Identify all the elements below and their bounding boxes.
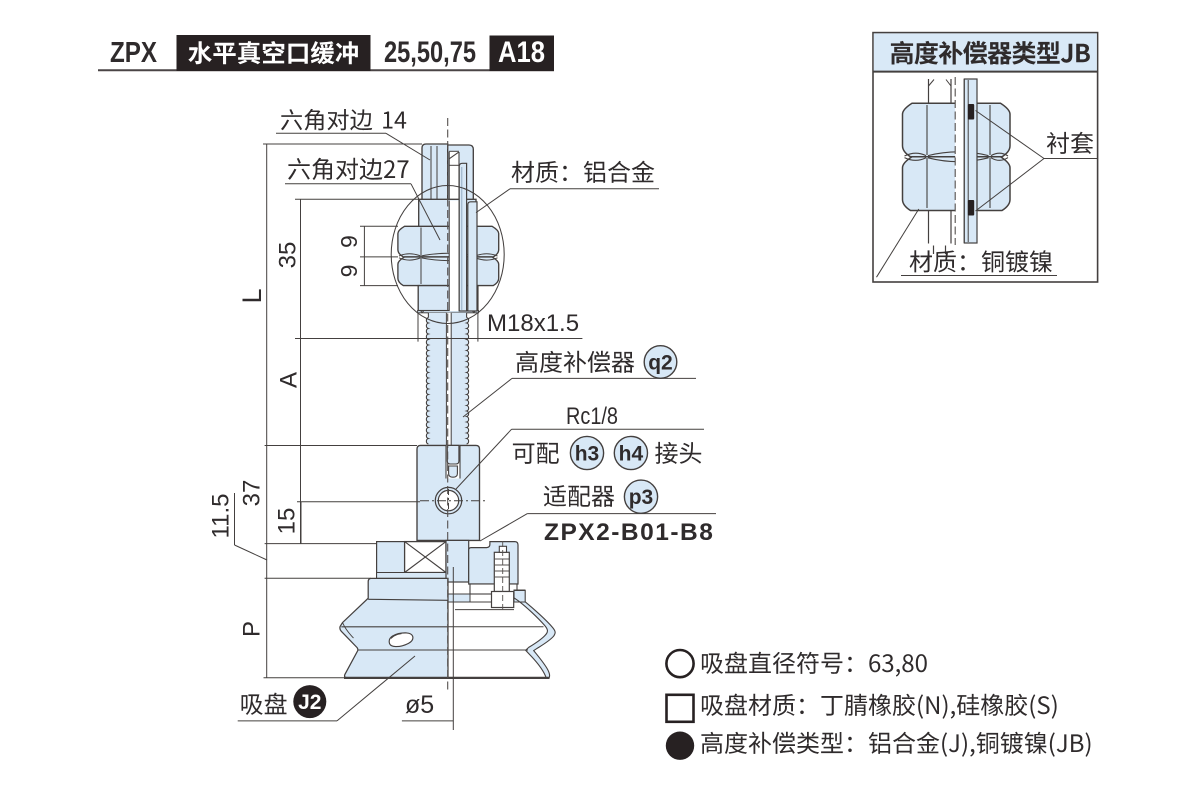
svg-text:A18: A18 (498, 36, 545, 69)
svg-text:9: 9 (336, 235, 362, 248)
svg-text:ZPX: ZPX (110, 37, 158, 69)
svg-text:P: P (238, 621, 265, 637)
svg-text:11.5: 11.5 (207, 494, 234, 539)
svg-text:M18x1.5: M18x1.5 (487, 310, 579, 337)
svg-text:ø5: ø5 (405, 691, 434, 719)
svg-text:h4: h4 (619, 443, 644, 466)
svg-text:Rc1/8: Rc1/8 (566, 403, 618, 430)
svg-text:37: 37 (238, 480, 265, 507)
svg-text:15: 15 (273, 508, 300, 535)
svg-text:h3: h3 (575, 443, 600, 466)
svg-text:ZPX2-B01-B8: ZPX2-B01-B8 (544, 519, 714, 546)
svg-text:L: L (237, 288, 267, 303)
svg-text:J2: J2 (298, 691, 321, 714)
svg-text:p3: p3 (629, 486, 654, 509)
svg-text:9: 9 (336, 265, 362, 278)
svg-text:35: 35 (274, 242, 301, 269)
svg-text:25,50,75: 25,50,75 (384, 36, 476, 69)
svg-text:q2: q2 (648, 352, 673, 375)
svg-text:A: A (275, 372, 302, 388)
